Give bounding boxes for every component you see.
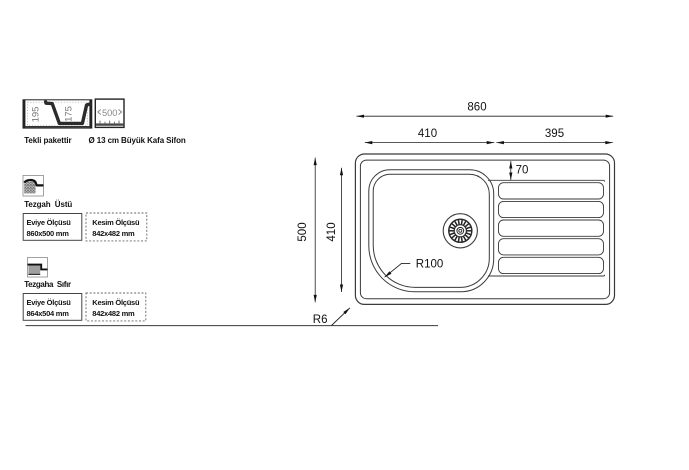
- svg-text:Kesim Ölçüsü: Kesim Ölçüsü: [92, 298, 140, 307]
- svg-text:410: 410: [326, 222, 338, 241]
- svg-text:195: 195: [31, 107, 42, 123]
- svg-text:410: 410: [418, 128, 437, 140]
- svg-text:500: 500: [297, 222, 309, 241]
- svg-text:R6: R6: [313, 314, 328, 326]
- svg-text:Eviye Ölçüsü: Eviye Ölçüsü: [27, 218, 72, 227]
- svg-text:864x504 mm: 864x504 mm: [27, 309, 70, 318]
- svg-text:Tezgaha Sıfır: Tezgaha Sıfır: [24, 280, 71, 289]
- svg-text:842x482 mm: 842x482 mm: [92, 229, 135, 238]
- svg-text:842x482 mm: 842x482 mm: [92, 309, 135, 318]
- svg-text:Kesim Ölçüsü: Kesim Ölçüsü: [92, 218, 140, 227]
- svg-text:Ø 13 cm Büyük Kafa Sifon: Ø 13 cm Büyük Kafa Sifon: [89, 136, 186, 145]
- svg-text:R100: R100: [416, 259, 444, 271]
- svg-text:Tekli pakettir: Tekli pakettir: [24, 136, 71, 145]
- svg-text:860: 860: [467, 102, 486, 114]
- svg-text:Eviye Ölçüsü: Eviye Ölçüsü: [27, 298, 72, 307]
- svg-text:175: 175: [64, 106, 75, 122]
- svg-text:70: 70: [516, 165, 529, 177]
- svg-text:Tezgah Üstü: Tezgah Üstü: [24, 200, 72, 209]
- svg-text:860x500 mm: 860x500 mm: [27, 229, 70, 238]
- svg-text:395: 395: [545, 128, 564, 140]
- svg-text:500: 500: [102, 108, 118, 118]
